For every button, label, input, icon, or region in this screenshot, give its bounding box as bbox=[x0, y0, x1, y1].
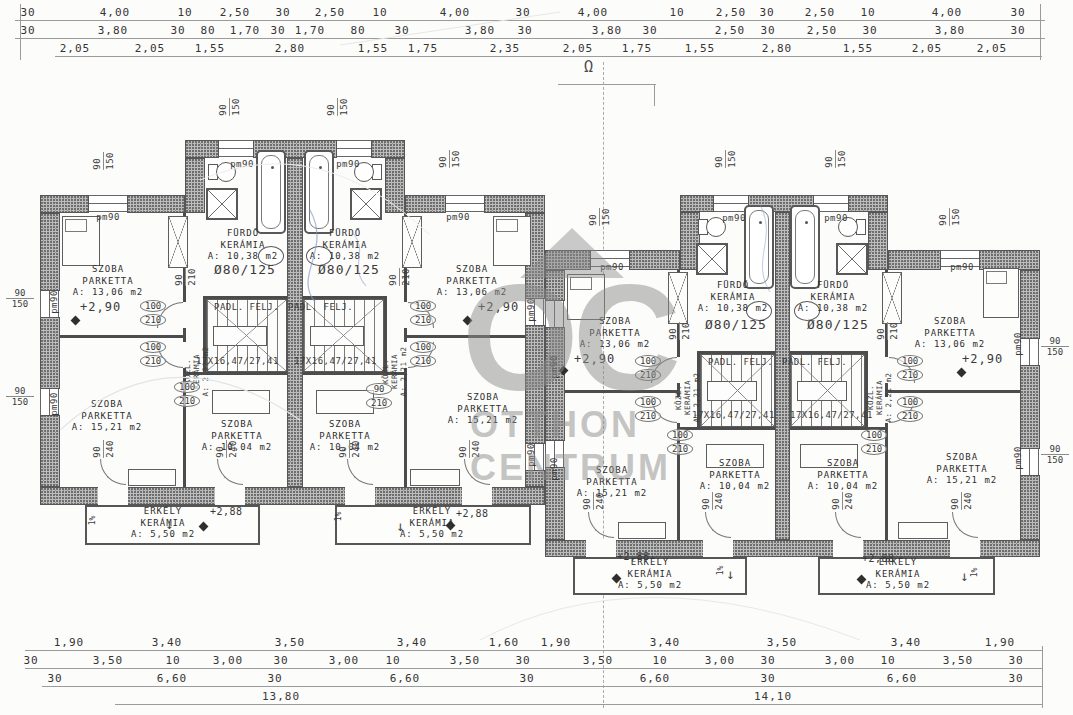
dimension-label: 30 bbox=[499, 6, 547, 19]
dim-tag: 240 bbox=[844, 492, 854, 510]
dimension-label: 1,55 bbox=[834, 42, 882, 55]
partition-wall bbox=[565, 390, 677, 393]
dim-tag: 100 bbox=[861, 429, 887, 441]
dimension-label: 10 bbox=[844, 6, 892, 19]
wall bbox=[868, 212, 888, 270]
dimension-label: 3,50 bbox=[84, 654, 132, 667]
dimension-label: 2,50 bbox=[798, 24, 846, 37]
level-label: +2,88 bbox=[862, 553, 895, 564]
dim-tag: 90 bbox=[824, 150, 834, 168]
bathtub bbox=[256, 150, 286, 234]
door-opening bbox=[703, 540, 733, 557]
lintel-tag: pm90 bbox=[224, 159, 260, 169]
cabinet bbox=[410, 469, 460, 486]
dimension-label: 2,05 bbox=[51, 42, 99, 55]
dim-tag: 90 bbox=[668, 322, 678, 340]
dim-tag: 90 bbox=[174, 268, 184, 286]
lintel-tag: pm90 bbox=[440, 212, 476, 222]
dimension-label: 30 bbox=[846, 24, 894, 37]
room-label: ERKÉLYKERÁMIAA: 5,50 m2 bbox=[843, 557, 953, 592]
shower-spec: Ø80/125 bbox=[318, 262, 380, 277]
dim-tag: 90 bbox=[6, 386, 34, 397]
level-label: +2,88 bbox=[456, 508, 489, 519]
dimension-label: 30 bbox=[378, 24, 426, 37]
room-name: FÜRDŐ bbox=[778, 280, 888, 292]
dimension-label: 30 bbox=[744, 654, 792, 667]
lintel-tag: pm90 bbox=[49, 386, 59, 422]
dimension-label: 2,05 bbox=[903, 42, 951, 55]
lintel-tag: pm90 bbox=[594, 262, 630, 272]
bottom-dim-row-2: 303,50103,00303,00103,50303,50103,00303,… bbox=[0, 654, 1073, 667]
room-name: FÜRDŐ bbox=[188, 228, 298, 240]
dim-tag: 90 bbox=[92, 152, 102, 170]
dim-tag: 90 bbox=[588, 208, 598, 226]
dimension-label: 1,60 bbox=[480, 636, 528, 649]
room-area: A: 15,21 m2 bbox=[557, 488, 667, 500]
wall bbox=[1020, 270, 1040, 540]
dimension-label: 30 bbox=[7, 654, 55, 667]
wall bbox=[40, 213, 60, 487]
room-finish: PARKETTA bbox=[417, 276, 527, 288]
dim-tag: 90 bbox=[338, 440, 348, 458]
lintel-tag: pm90 bbox=[90, 212, 126, 222]
room-area: A: 2,21 m2 bbox=[201, 328, 210, 416]
door-opening bbox=[215, 487, 245, 505]
dim-tag: 90 bbox=[215, 440, 225, 458]
lintel-tag: pm90 bbox=[1013, 326, 1023, 362]
dimension-label: 3,50 bbox=[441, 654, 489, 667]
dimension-label: 3,00 bbox=[320, 654, 368, 667]
room-finish: PARKETTA bbox=[428, 404, 538, 416]
window bbox=[1020, 448, 1040, 476]
dimension-label: 30 bbox=[251, 672, 299, 685]
room-name: SZOBA bbox=[680, 458, 790, 470]
dim-tag: 90 bbox=[1041, 336, 1069, 347]
dim-tag: 90 bbox=[714, 150, 724, 168]
stair-spec: 17X16,47/27,41 bbox=[294, 356, 377, 366]
level-label: +2,88 bbox=[210, 506, 243, 517]
room-name: SZOBA bbox=[560, 316, 670, 328]
door-arc bbox=[705, 512, 731, 538]
lintel-tag: pm90 bbox=[330, 159, 366, 169]
dimension-label: 30 bbox=[992, 654, 1040, 667]
stair-spec: 17X16,47/27,41 bbox=[692, 410, 775, 420]
dimension-label: 4,00 bbox=[923, 6, 971, 19]
door-opening bbox=[950, 540, 980, 557]
room-area: A: 5,50 m2 bbox=[377, 529, 487, 541]
dimension-label: 1,55 bbox=[349, 42, 397, 55]
dimension-label: 1,70 bbox=[286, 24, 334, 37]
window-size-tag: 90150 bbox=[6, 386, 34, 407]
room-label: SZOBAPARKETTAA: 13,06 m2 bbox=[895, 316, 1005, 351]
dim-tag: 210 bbox=[635, 410, 661, 422]
dimension-label: 6,60 bbox=[878, 672, 926, 685]
dimension-label: 1,90 bbox=[45, 636, 93, 649]
balcony-door-tag: 90240 bbox=[213, 440, 240, 458]
dim-tag: 240 bbox=[714, 492, 724, 510]
dim-tag: 90 bbox=[701, 492, 711, 510]
room-finish: PARKETTA bbox=[907, 464, 1017, 476]
dimension-label: 3,50 bbox=[758, 636, 806, 649]
dim-tag: 100 bbox=[635, 355, 661, 367]
room-finish: PARKETTA bbox=[560, 328, 670, 340]
window-size-tag: 90150 bbox=[216, 98, 243, 116]
wall bbox=[680, 195, 888, 212]
bottom-dim-row-1: 1,903,403,503,401,601,903,403,503,401,90 bbox=[0, 636, 1073, 649]
lintel-tag: pm90 bbox=[526, 437, 536, 473]
dimension-label: 3,40 bbox=[143, 636, 191, 649]
stair-note: PADL. FELJ. bbox=[288, 302, 353, 312]
dim-line bbox=[42, 686, 1042, 687]
dim-tag: 240 bbox=[105, 440, 115, 458]
wardrobe bbox=[402, 216, 422, 268]
room-area: A: 5,50 m2 bbox=[595, 580, 705, 592]
dim-tag: 150 bbox=[951, 208, 961, 226]
dim-tag: 90 bbox=[326, 98, 336, 116]
shower-tray bbox=[836, 243, 868, 275]
dimension-label: 2,80 bbox=[753, 42, 801, 55]
dim-tag: 210 bbox=[667, 443, 693, 455]
dim-tag: 100 bbox=[635, 396, 661, 408]
room-finish: PARKETTA bbox=[52, 411, 162, 423]
door-size-tag: 100210 bbox=[410, 339, 436, 369]
dim-tag: 210 bbox=[410, 355, 436, 367]
room-label: SZOBAPARKETTAA: 13,06 m2 bbox=[417, 264, 527, 299]
door-arc bbox=[100, 459, 126, 485]
level-label: +2,90 bbox=[478, 300, 519, 314]
plot-boundary-line bbox=[603, 62, 604, 708]
door-size-tag: 100210 bbox=[140, 339, 166, 369]
door-opening bbox=[183, 302, 186, 328]
dimension-label: 10 bbox=[369, 654, 417, 667]
room-finish: KERÁMIA bbox=[188, 240, 298, 252]
room-label: SZOBAPARKETTAA: 10,04 m2 bbox=[788, 458, 898, 493]
dim-tag: 150 bbox=[451, 150, 461, 168]
wardrobe bbox=[168, 216, 188, 268]
door-arc bbox=[952, 512, 978, 538]
balcony-door-tag: 90240 bbox=[948, 492, 975, 510]
room-name: SZOBA bbox=[290, 419, 400, 431]
dimension-label: 80 bbox=[334, 24, 382, 37]
lintel-tag: pm90 bbox=[944, 262, 980, 272]
dimension-label: 3,50 bbox=[574, 654, 622, 667]
dim-tag: 210 bbox=[140, 355, 166, 367]
dimension-label: 2,05 bbox=[554, 42, 602, 55]
top-dim-row-3: 2,052,051,552,801,551,752,352,051,751,55… bbox=[0, 42, 1073, 55]
dim-tag: 210 bbox=[187, 268, 197, 286]
level-label: +2,90 bbox=[574, 352, 615, 366]
partition-wall bbox=[888, 390, 1020, 393]
dim-tag: 210 bbox=[897, 369, 923, 381]
stair-note: PADL. FELJ. bbox=[782, 357, 847, 367]
slope-label: 1% bbox=[716, 566, 725, 576]
top-dim-row-1: 304,00102,50302,50104,00304,00102,50302,… bbox=[0, 6, 1073, 19]
dim-tag: 90 bbox=[6, 288, 34, 299]
lintel-tag: pm90 bbox=[1013, 440, 1023, 476]
window-size-tag: 90150 bbox=[586, 208, 613, 226]
dimension-label: 3,80 bbox=[926, 24, 974, 37]
door-size-tag: 100210 bbox=[897, 394, 923, 424]
dim-tag: 100 bbox=[667, 429, 693, 441]
room-name: SZOBA bbox=[53, 264, 163, 276]
dim-line bbox=[115, 704, 1042, 705]
dimension-label: 30 bbox=[503, 672, 551, 685]
room-name: SZOBA bbox=[52, 399, 162, 411]
dim-tag: 90 bbox=[950, 492, 960, 510]
dimension-label: 3,50 bbox=[266, 636, 314, 649]
lintel-tag: pm90 bbox=[526, 292, 536, 328]
slope-label: 1% bbox=[334, 512, 343, 522]
room-area: A: 2,21 m2 bbox=[399, 328, 408, 416]
dim-tag: 210 bbox=[174, 395, 200, 407]
dimension-label: 3,80 bbox=[89, 24, 137, 37]
cabinet bbox=[128, 469, 176, 486]
dim-tag: 90 bbox=[876, 322, 886, 340]
dim-tag: 100 bbox=[410, 341, 436, 353]
dim-tag: 150 bbox=[231, 98, 241, 116]
dimension-label: 3,40 bbox=[882, 636, 930, 649]
dimension-label: 3,00 bbox=[204, 654, 252, 667]
dim-tag: 210 bbox=[861, 443, 887, 455]
dimension-label: 30 bbox=[994, 24, 1042, 37]
door-opening bbox=[345, 487, 375, 505]
room-name: FÜRDŐ bbox=[678, 280, 788, 292]
lintel-tag: pm90 bbox=[549, 451, 559, 487]
door-size-tag: 100210 bbox=[667, 427, 693, 457]
dimension-label: 2,50 bbox=[796, 6, 844, 19]
room-area: A: 13,06 m2 bbox=[417, 287, 527, 299]
door-size-tag: 100210 bbox=[897, 353, 923, 383]
level-marker-icon bbox=[71, 316, 81, 326]
level-label: +2,90 bbox=[80, 300, 121, 314]
stair-spec: 17X16,47/27,41 bbox=[790, 410, 873, 420]
bed bbox=[983, 268, 1019, 318]
dimension-label: 30 bbox=[992, 672, 1040, 685]
door-size-tag: 100210 bbox=[174, 379, 200, 409]
dimension-label: 4,00 bbox=[569, 6, 617, 19]
room-label: SZOBAPARKETTAA: 13,06 m2 bbox=[560, 316, 670, 351]
overall-width-right: 14,10 bbox=[754, 690, 792, 703]
window-size-tag: 90150 bbox=[324, 98, 351, 116]
room-name: FÜRDŐ bbox=[290, 228, 400, 240]
room-area: A: 10,04 m2 bbox=[680, 481, 790, 493]
dim-tag: 210 bbox=[889, 322, 899, 340]
room-name: SZOBA bbox=[417, 264, 527, 276]
dim-tag: 210 bbox=[366, 397, 392, 409]
level-marker-icon bbox=[463, 316, 473, 326]
room-label: ERKÉLYKERÁMIAA: 5,50 m2 bbox=[595, 557, 705, 592]
cabinet bbox=[212, 390, 270, 414]
dimension-label: 30 bbox=[259, 6, 307, 19]
dimension-label: 1,55 bbox=[186, 42, 234, 55]
door-arc bbox=[588, 512, 614, 538]
window-size-tag: 90150 bbox=[1041, 336, 1069, 357]
room-area: A: 15,21 m2 bbox=[52, 422, 162, 434]
room-name: SZOBA bbox=[895, 316, 1005, 328]
dimension-label: 2,50 bbox=[306, 6, 354, 19]
room-area: A: 10,38 m2 bbox=[678, 303, 788, 315]
dimension-label: 30 bbox=[743, 6, 791, 19]
dim-tag: 210 bbox=[140, 314, 166, 326]
dimension-label: 2,35 bbox=[481, 42, 529, 55]
door-size-tag: 90210 bbox=[386, 268, 413, 286]
dim-tag: 90 bbox=[218, 98, 228, 116]
room-area: A: 13,06 m2 bbox=[560, 339, 670, 351]
room-name: SZOBA bbox=[182, 419, 292, 431]
dim-tick bbox=[20, 4, 21, 60]
window-size-tag: 90150 bbox=[822, 150, 849, 168]
door-opening bbox=[586, 540, 616, 557]
dim-tag: 90 bbox=[92, 440, 102, 458]
dimension-label: 3,40 bbox=[641, 636, 689, 649]
cabinet bbox=[898, 522, 948, 539]
shower-tray bbox=[206, 188, 238, 220]
balcony-door-tag: 90240 bbox=[580, 492, 607, 510]
level-label: +2,88 bbox=[617, 551, 650, 562]
shower-spec: Ø80/125 bbox=[705, 317, 767, 332]
room-area: A: 13,06 m2 bbox=[53, 287, 163, 299]
dimension-label: 1,55 bbox=[676, 42, 724, 55]
door-size-tag: 90210 bbox=[366, 381, 392, 411]
room-name: SZOBA bbox=[428, 392, 538, 404]
bed bbox=[62, 216, 100, 266]
dim-tag: 240 bbox=[471, 440, 481, 458]
shower-tray bbox=[350, 188, 382, 220]
dimension-label: 3,40 bbox=[388, 636, 436, 649]
room-finish: KERÁMIA bbox=[290, 240, 400, 252]
room-area: A: 15,21 m2 bbox=[428, 415, 538, 427]
dim-tag: 150 bbox=[105, 152, 115, 170]
stair-note: PADL. FELJ. bbox=[708, 357, 773, 367]
partition-wall bbox=[60, 335, 183, 338]
room-finish: PARKETTA bbox=[557, 477, 667, 489]
dimension-label: 30 bbox=[626, 24, 674, 37]
door-size-tag: 90210 bbox=[874, 322, 901, 340]
dimension-label: 10 bbox=[161, 6, 209, 19]
room-label: SZOBAPARKETTAA: 10,04 m2 bbox=[680, 458, 790, 493]
dimension-label: 1,90 bbox=[532, 636, 580, 649]
room-finish: PARKETTA bbox=[680, 470, 790, 482]
dimension-label: 1,75 bbox=[613, 42, 661, 55]
room-area: A: 10,38 m2 bbox=[290, 251, 400, 263]
stair-spec: 17X16,47/27,41 bbox=[196, 356, 279, 366]
dim-tick bbox=[1042, 646, 1043, 708]
door-size-tag: 100210 bbox=[140, 298, 166, 328]
room-area: A: 13,06 m2 bbox=[895, 339, 1005, 351]
dimension-label: 6,60 bbox=[148, 672, 196, 685]
room-finish: PARKETTA bbox=[895, 328, 1005, 340]
dim-line bbox=[55, 56, 1042, 57]
bottom-dim-row-3: 306,60306,60306,60306,6030 bbox=[0, 672, 1073, 685]
door-arc bbox=[464, 459, 490, 485]
dimension-label: 2,05 bbox=[126, 42, 174, 55]
room-area: A: 10,38 m2 bbox=[188, 251, 298, 263]
room-finish: PARKETTA bbox=[788, 470, 898, 482]
window-size-tag: 90150 bbox=[436, 150, 463, 168]
window bbox=[218, 140, 254, 158]
dim-tag: 150 bbox=[1041, 455, 1069, 465]
slope-arrow-icon: ↓ bbox=[396, 518, 404, 534]
dim-tag: 100 bbox=[140, 300, 166, 312]
slope-label: 1% bbox=[88, 516, 97, 526]
room-finish: KERÁMIA bbox=[778, 292, 888, 304]
dimension-label: 30 bbox=[4, 24, 52, 37]
slope-arrow-icon: ↓ bbox=[165, 516, 173, 532]
room-name: SZOBA bbox=[907, 452, 1017, 464]
door-opening bbox=[462, 487, 492, 505]
wall bbox=[385, 158, 405, 213]
balcony-door-tag: 90240 bbox=[829, 492, 856, 510]
balcony-door-tag: 90240 bbox=[699, 492, 726, 510]
slope-arrow-icon: ↓ bbox=[726, 566, 734, 582]
dim-tag: 210 bbox=[635, 369, 661, 381]
dimension-label: 6,60 bbox=[631, 672, 679, 685]
dim-tag: 150 bbox=[727, 150, 737, 168]
dim-tag: 240 bbox=[963, 492, 973, 510]
door-size-tag: 90210 bbox=[666, 322, 693, 340]
dim-tag: 210 bbox=[897, 410, 923, 422]
room-label: FÜRDŐKERÁMIAA: 10,38 m2 bbox=[188, 228, 298, 263]
slope-label: 1% bbox=[970, 568, 979, 578]
balcony-door-tag: 90240 bbox=[336, 440, 363, 458]
window-size-tag: 90150 bbox=[712, 150, 739, 168]
shower-tray bbox=[696, 243, 728, 275]
dimension-label: 1,90 bbox=[976, 636, 1024, 649]
dimension-label: 30 bbox=[31, 672, 79, 685]
dimension-label: 10 bbox=[653, 6, 701, 19]
dim-tag: 100 bbox=[410, 300, 436, 312]
dimension-label: 2,05 bbox=[968, 42, 1016, 55]
room-label: SZOBAPARKETTAA: 15,21 m2 bbox=[557, 465, 667, 500]
dim-tag: 150 bbox=[6, 299, 34, 309]
floor-plan-scan: 304,00102,50302,50104,00304,00102,50302,… bbox=[0, 0, 1073, 715]
room-area: A: 10,04 m2 bbox=[788, 481, 898, 493]
room-label: FÜRDŐKERÁMIAA: 10,38 m2 bbox=[290, 228, 400, 263]
dimension-label: 3,00 bbox=[816, 654, 864, 667]
dimension-label: 30 bbox=[257, 654, 305, 667]
room-name: ERKÉLY bbox=[108, 506, 218, 518]
room-label: SZOBAPARKETTAA: 15,21 m2 bbox=[907, 452, 1017, 487]
dim-tag: 150 bbox=[1041, 347, 1069, 357]
room-label: FÜRDŐKERÁMIAA: 10,38 m2 bbox=[778, 280, 888, 315]
dim-tag: 100 bbox=[140, 341, 166, 353]
dimension-label: 2,50 bbox=[211, 6, 259, 19]
door-arc bbox=[835, 512, 861, 538]
balcony-door-tag: 90240 bbox=[456, 440, 483, 458]
window-size-tag: 90150 bbox=[90, 152, 117, 170]
room-label: SZOBAPARKETTAA: 15,21 m2 bbox=[428, 392, 538, 427]
lintel-tag: pm90 bbox=[818, 213, 854, 223]
door-opening bbox=[404, 302, 407, 328]
door-size-tag: 100210 bbox=[410, 298, 436, 328]
shower-spec: Ø80/125 bbox=[214, 262, 276, 277]
room-label: SZOBAPARKETTAA: 13,06 m2 bbox=[53, 264, 163, 299]
dim-tag: 90 bbox=[831, 492, 841, 510]
window-size-tag: 90150 bbox=[6, 288, 34, 309]
dimension-label: 10 bbox=[636, 654, 684, 667]
room-name: SZOBA bbox=[788, 458, 898, 470]
door-size-tag: 90210 bbox=[172, 268, 199, 286]
dimension-label: 30 bbox=[744, 24, 792, 37]
dimension-label: 1,75 bbox=[399, 42, 447, 55]
dim-tag: 90 bbox=[438, 150, 448, 168]
dim-tag: 150 bbox=[601, 208, 611, 226]
dim-tag: 90 bbox=[458, 440, 468, 458]
dim-tag: 90 bbox=[938, 208, 948, 226]
room-area: A: 15,21 m2 bbox=[907, 475, 1017, 487]
dimension-label: 30 bbox=[744, 672, 792, 685]
room-name: ERKÉLY bbox=[595, 557, 705, 569]
